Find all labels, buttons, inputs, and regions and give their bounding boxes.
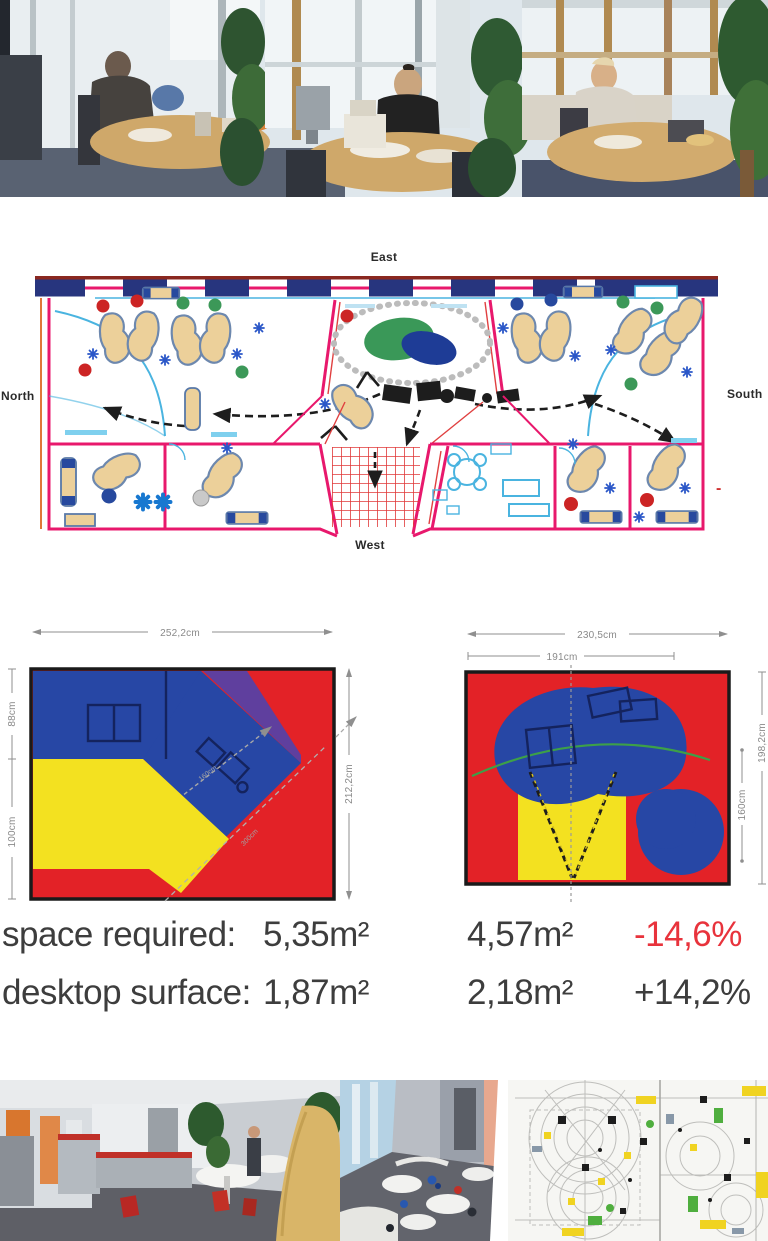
rooms-southeast [559, 438, 698, 523]
office-photo-strip [0, 0, 768, 197]
render-topdown-view [340, 1080, 508, 1241]
stats-label: space required: [2, 915, 236, 955]
compass-label-south: South [727, 387, 763, 401]
right-width-inner-dim: 191cm [546, 652, 577, 663]
compass-label-east: East [0, 250, 768, 264]
left-layout-diagram: 160cm 300cm [31, 669, 356, 901]
stats-row-desktop: desktop surface: 1,87m² 2,18m² +14,2% [0, 973, 768, 1029]
stats-label: desktop surface: [2, 973, 251, 1013]
mid-band-desks [185, 378, 379, 435]
stats-before: 1,87m² [263, 973, 369, 1013]
stats-delta: +14,2% [634, 973, 751, 1013]
right-height-inner-dim: 160cm [737, 789, 748, 820]
left-side-top-dim: 88cm [7, 701, 18, 726]
left-width-dim: 252,2cm [160, 628, 200, 639]
left-side-bottom-dim: 100cm [7, 816, 18, 847]
stats-delta: -14,6% [634, 915, 742, 955]
meeting-room [322, 300, 503, 396]
stats-after: 4,57m² [467, 915, 573, 955]
stats-row-space: space required: 5,35m² 4,57m² -14,6% [0, 915, 768, 971]
right-width-outer-dim: 230,5cm [577, 630, 617, 641]
stats-before: 5,35m² [263, 915, 369, 955]
left-height-dim: 212,2cm [344, 764, 355, 804]
stats-after: 2,18m² [467, 973, 573, 1013]
render-interior-view [0, 1080, 342, 1241]
layout-comparison: 160cm 300cm [0, 615, 768, 911]
technical-plan-drawing [508, 1080, 768, 1241]
stair-grid [332, 447, 420, 527]
floor-plan [35, 276, 718, 542]
right-layout-diagram [466, 659, 729, 903]
concept-render-strip [0, 1080, 768, 1241]
right-height-outer-dim: 198,2cm [757, 723, 768, 763]
desk-cluster-northwest [79, 287, 265, 378]
compass-label-north: North [1, 389, 35, 403]
design-study-page: East North South West - [0, 0, 768, 1241]
